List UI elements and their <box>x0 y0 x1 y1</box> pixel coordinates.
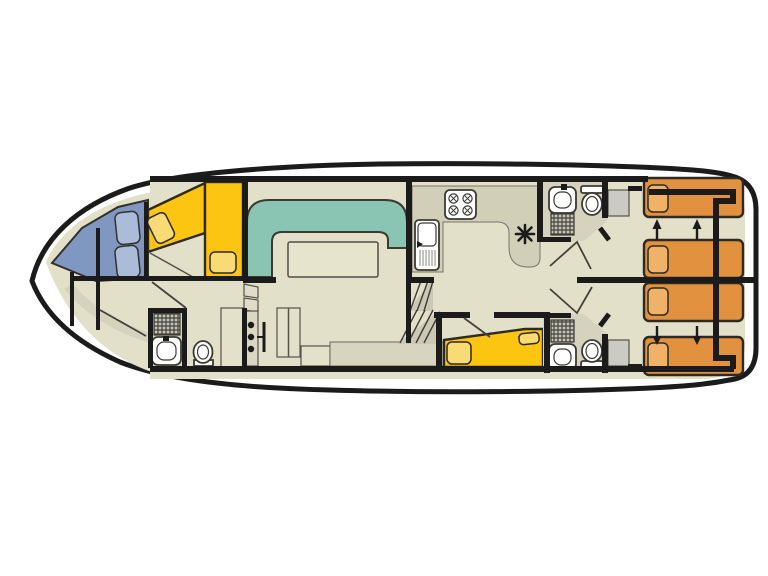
centerline-wall <box>577 277 756 283</box>
mid-cabin-wall <box>494 312 544 318</box>
faucet-icon <box>163 336 169 341</box>
bathroom-wall <box>182 308 187 368</box>
bow-wall <box>96 228 100 330</box>
bow-bulkhead <box>242 178 248 280</box>
bathroom-wall <box>148 308 186 313</box>
faucet-icon <box>561 184 567 190</box>
saloon-table <box>288 242 378 277</box>
hob <box>445 190 476 219</box>
bed-pillow <box>648 246 668 273</box>
toilet <box>194 341 213 363</box>
bow-cushion <box>114 245 140 279</box>
bow-bed-pillow <box>210 252 236 273</box>
knob-icon <box>248 334 254 340</box>
bathroom-wall <box>543 237 571 242</box>
bench-long <box>330 342 443 366</box>
top-cabin-wall <box>150 176 648 182</box>
bow-cushion <box>114 211 140 245</box>
knob-icon <box>248 322 254 328</box>
washbasin <box>152 337 181 365</box>
wardrobe <box>221 308 243 368</box>
bed-pillow <box>447 342 471 364</box>
cabin-wall-stub <box>628 186 642 191</box>
floor-plan-canvas <box>0 0 768 576</box>
stair-wall <box>406 277 411 343</box>
bow-divider <box>144 202 148 278</box>
shower <box>154 313 180 335</box>
saloon-wall <box>243 277 276 283</box>
mid-cabin-wall <box>544 312 550 373</box>
washbasin <box>549 187 576 213</box>
step <box>244 284 258 298</box>
galley-bulkhead <box>406 176 412 283</box>
mid-cabin-wall <box>436 312 442 370</box>
locker <box>608 190 629 216</box>
bed-pillow <box>648 343 668 370</box>
bed-pillow <box>519 332 540 345</box>
bathroom-wall <box>148 308 153 368</box>
bathroom-wall <box>602 334 608 373</box>
shower <box>551 320 574 342</box>
locker <box>608 340 629 366</box>
shower <box>551 213 574 235</box>
stair-wall <box>406 277 434 283</box>
bed-pillow <box>648 288 668 315</box>
bow-wall <box>70 272 74 326</box>
heater-asterisk-icon <box>516 225 534 243</box>
bathroom-wall <box>602 176 608 218</box>
knob-icon <box>248 346 254 352</box>
boat-floor-plan <box>0 0 768 576</box>
bathroom-wall <box>543 313 571 318</box>
saloon-wall <box>242 308 247 368</box>
toilet-tank <box>581 186 603 193</box>
cabin-wall-stub <box>628 364 642 369</box>
bench-small <box>301 346 330 366</box>
galley-wall <box>537 176 543 242</box>
